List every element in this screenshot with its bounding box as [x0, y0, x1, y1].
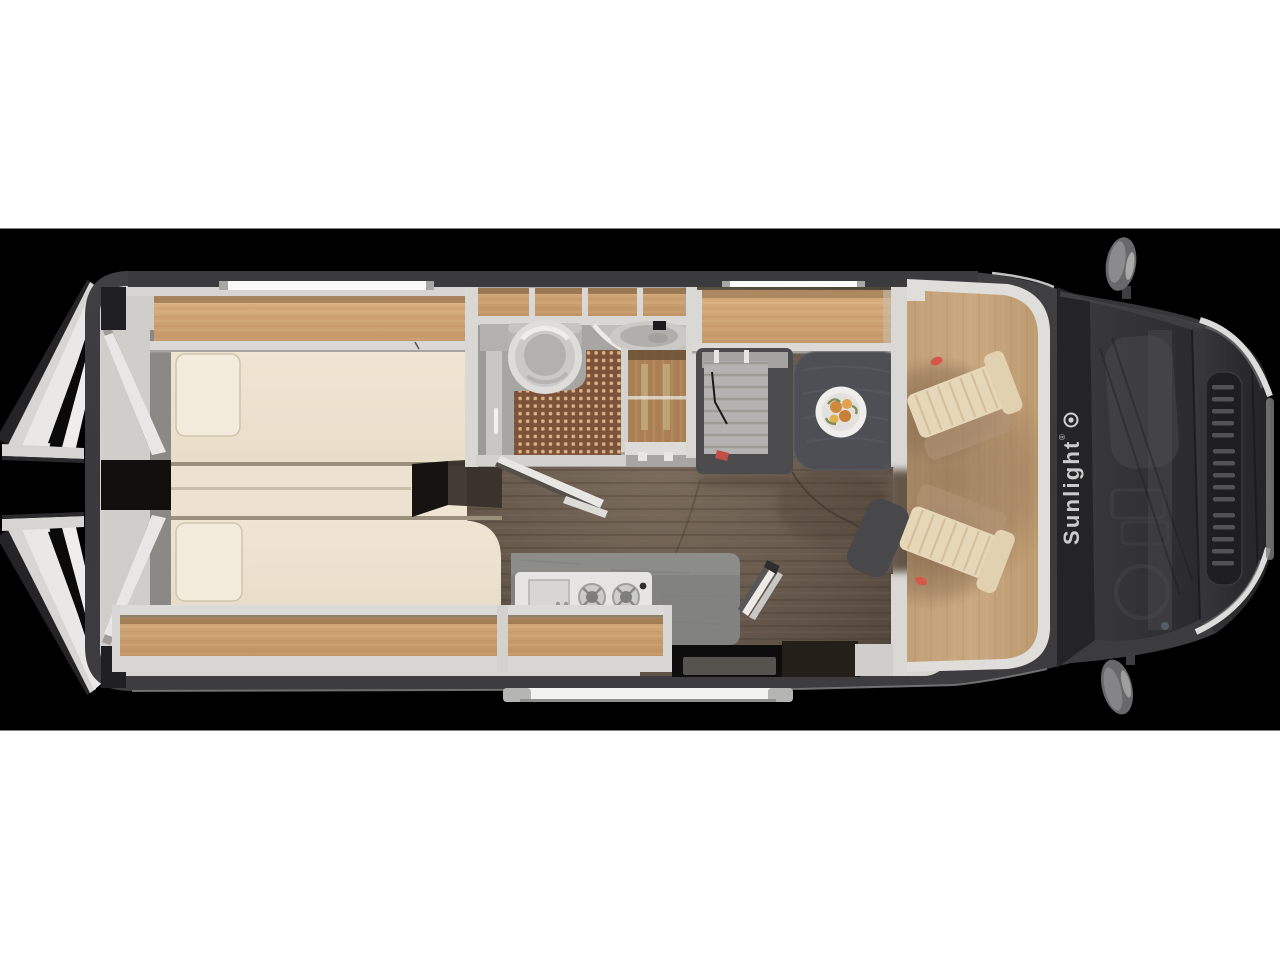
svg-text:®: ® — [1058, 434, 1067, 440]
svg-text:Sunlight: Sunlight — [1059, 439, 1084, 545]
